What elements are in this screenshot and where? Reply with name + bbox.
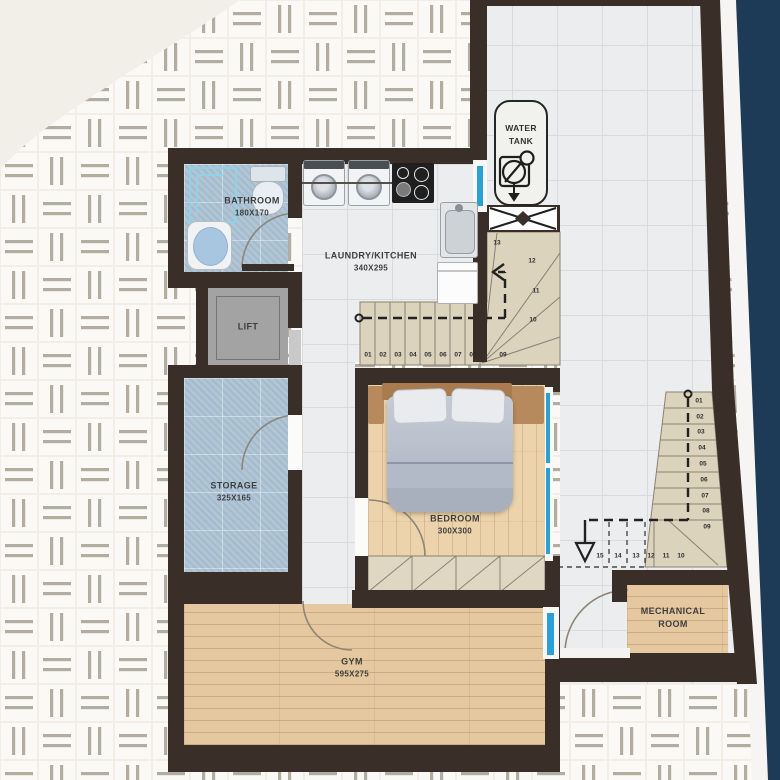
route-down-arrow-icon (576, 543, 594, 561)
water-tank-label: WATER TANK (504, 122, 538, 148)
storage-label: STORAGE 325X165 (210, 480, 257, 505)
wall (288, 148, 302, 218)
faucet (455, 204, 463, 212)
stair-step-number: 12 (647, 553, 654, 560)
vent-louver (489, 207, 557, 230)
wall (196, 272, 208, 378)
washer-panel (304, 161, 344, 169)
wall (612, 570, 730, 585)
stair-step-number: 07 (701, 493, 708, 500)
lift-door (289, 330, 301, 366)
bathroom-door-arc (242, 213, 297, 268)
stair-step-number: 13 (493, 240, 500, 247)
stair-step-number: 03 (697, 429, 704, 436)
bedroom-glass-accent (546, 393, 550, 463)
fridge-handle (438, 270, 477, 272)
stair-step-number: 04 (409, 352, 416, 359)
bed-blanket-fold (387, 462, 513, 490)
mechanical-door-sill (560, 648, 630, 658)
stair-step-number: 07 (454, 352, 461, 359)
kitchen-label: LAUNDRY/KITCHEN 340X295 (325, 250, 417, 275)
stair-step-number: 05 (699, 461, 706, 468)
stair-step-number: 06 (439, 352, 446, 359)
sink-basin (445, 210, 475, 254)
stair-step-number: 01 (695, 398, 702, 405)
stair-step-number: 11 (533, 288, 540, 295)
kitchen-window-glass (477, 166, 483, 206)
storage-door-opening (288, 415, 302, 470)
burner (414, 167, 429, 182)
wall (352, 590, 560, 608)
wall (168, 365, 302, 378)
mechanical-room-label: MECHANICAL ROOM (634, 605, 712, 631)
stair-step-number: 03 (394, 352, 401, 359)
stair-step-number: 13 (632, 553, 639, 560)
stair-step-number: 09 (499, 352, 506, 359)
kitchen-sink (440, 202, 478, 258)
wall (355, 368, 368, 498)
bathroom-label: BATHROOM 180X170 (224, 195, 280, 220)
vent-x-icon (489, 207, 557, 230)
water-tank: WATER TANK (494, 100, 548, 206)
washer-drum (356, 174, 382, 200)
stair-step-number: 09 (703, 524, 710, 531)
bathroom-door-leaf (242, 264, 294, 271)
shower-inner-line (196, 174, 224, 214)
wall (168, 745, 560, 772)
wall (288, 272, 302, 328)
stair-step-number: 01 (364, 352, 371, 359)
stair-step-number: 15 (596, 553, 603, 560)
cooktop (392, 163, 434, 203)
water-pump-icon (496, 150, 536, 202)
bathtub-water (193, 227, 228, 266)
counter-edge-line (302, 182, 392, 184)
lift-label: LIFT (238, 320, 259, 333)
gym-window-glass (547, 613, 554, 655)
stair-step-number: 04 (698, 445, 705, 452)
toilet (250, 166, 286, 182)
stair-step-number: 11 (663, 553, 670, 560)
bedroom-label: BEDROOM 300X300 (430, 513, 480, 538)
bedroom-door-opening (355, 500, 368, 556)
wall (168, 572, 302, 604)
washer-panel (349, 161, 389, 169)
stair-step-number: 05 (424, 352, 431, 359)
wall (168, 365, 184, 595)
gym-door-arc (303, 601, 352, 650)
wall (288, 365, 302, 415)
wall (612, 570, 627, 602)
wall (168, 148, 184, 288)
wall (487, 0, 705, 6)
wall (545, 556, 560, 608)
burner (397, 167, 409, 179)
fridge (437, 262, 478, 304)
stair-step-number: 10 (529, 317, 536, 324)
gym-label: GYM 595X275 (335, 656, 369, 681)
stair-step-number: 02 (696, 414, 703, 421)
wall (168, 272, 302, 288)
floorplan-canvas: WATER TANK (0, 0, 780, 780)
stair-step-number: 12 (528, 258, 535, 265)
washer-drum (311, 174, 337, 200)
stair-step-number: 08 (702, 508, 709, 515)
stair-step-number: 14 (614, 553, 621, 560)
wall (470, 0, 487, 148)
bed-blanket-end (387, 488, 513, 512)
burner-knob (396, 182, 411, 197)
bed-pillow (392, 388, 447, 424)
stair-step-number: 02 (379, 352, 386, 359)
bedroom-glass-accent (546, 468, 550, 554)
stair-step-number: 10 (677, 553, 684, 560)
bed-pillow (450, 388, 505, 424)
stair-step-number: 08 (469, 352, 476, 359)
burner (414, 185, 429, 200)
stair-step-number: 06 (700, 477, 707, 484)
nightstand (511, 386, 544, 424)
